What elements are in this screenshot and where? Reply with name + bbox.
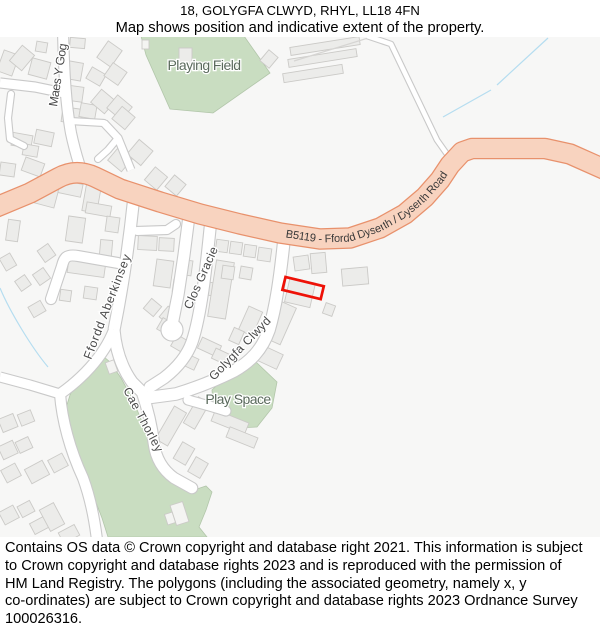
svg-text:Playing Field: Playing Field [167,57,240,73]
svg-text:Play Space: Play Space [205,391,271,407]
